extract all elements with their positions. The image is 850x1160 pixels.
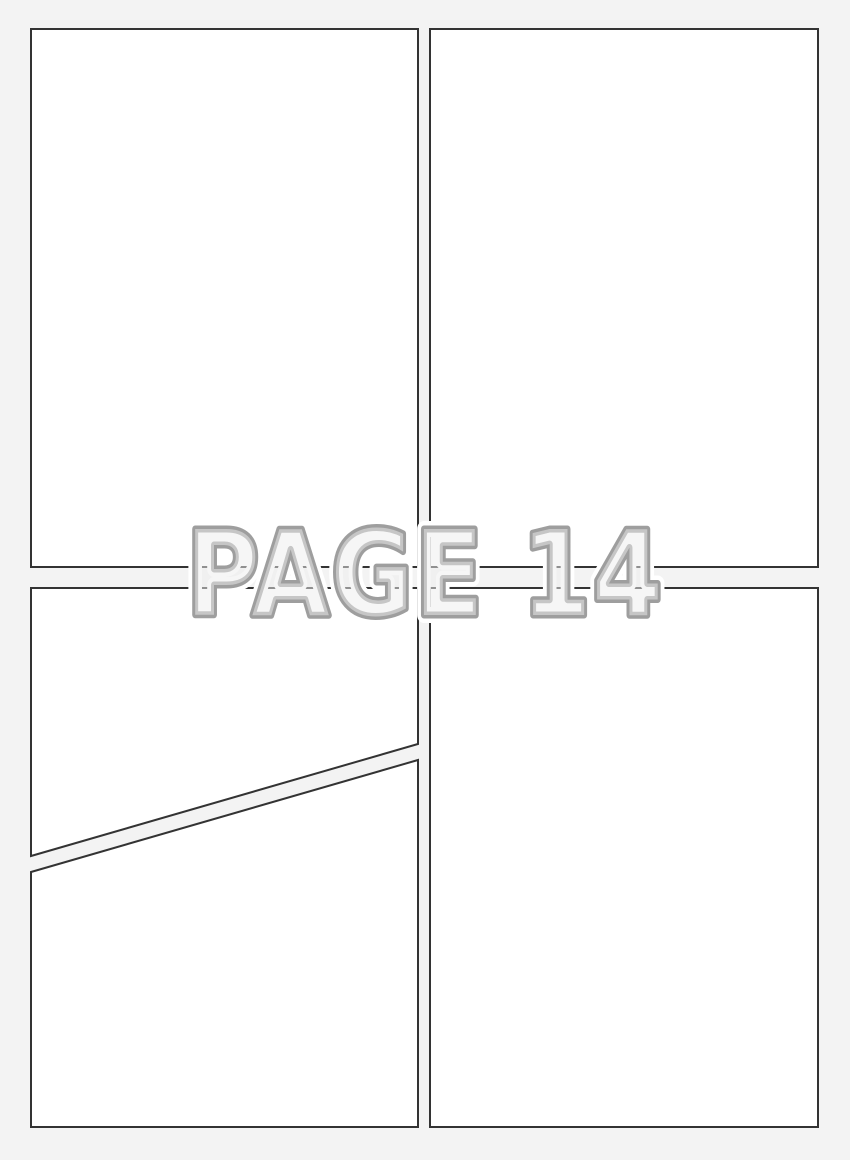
comic-panel-bottom-left-group <box>30 587 419 1128</box>
comic-panel-bottom-right <box>429 587 819 1128</box>
comic-panel-top-right <box>429 28 819 568</box>
comic-panel-top-left <box>30 28 419 568</box>
comic-page-template: PAGE 14 PAGE 14 <box>0 0 850 1160</box>
